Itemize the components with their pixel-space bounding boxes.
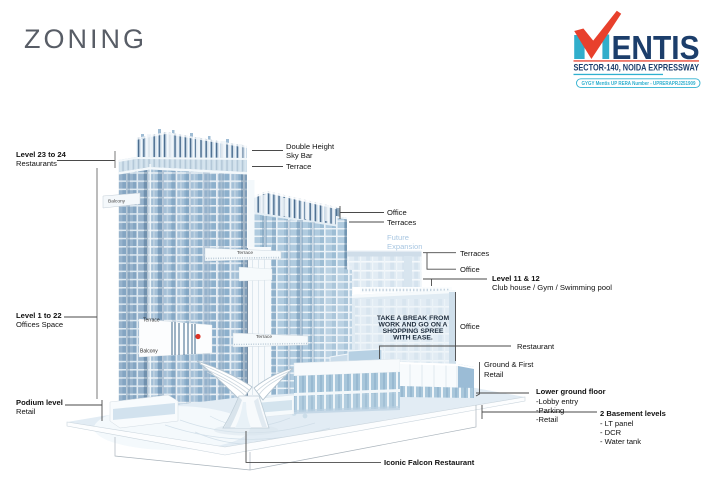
svg-text:-Retail: -Retail xyxy=(536,415,558,424)
svg-text:Sky Bar: Sky Bar xyxy=(286,151,313,160)
svg-text:Double Height: Double Height xyxy=(286,142,335,151)
svg-text:-Lobby entry: -Lobby entry xyxy=(536,397,578,406)
svg-text:Restaurant: Restaurant xyxy=(517,342,555,351)
svg-text:- LT panel: - LT panel xyxy=(600,419,634,428)
svg-text:Ground & First: Ground & First xyxy=(484,360,534,369)
svg-text:Retail: Retail xyxy=(484,370,504,379)
svg-text:Level 11 & 12: Level 11 & 12 xyxy=(492,274,540,283)
svg-text:Terrace: Terrace xyxy=(143,318,160,324)
svg-text:Lower ground floor: Lower ground floor xyxy=(536,387,606,396)
svg-text:Office: Office xyxy=(460,265,480,274)
svg-text:Iconic Falcon Restaurant: Iconic Falcon Restaurant xyxy=(384,458,475,467)
svg-text:Club house / Gym / Swimming po: Club house / Gym / Swimming pool xyxy=(492,283,612,292)
svg-text:Terraces: Terraces xyxy=(387,218,416,227)
svg-text:Terrace: Terrace xyxy=(237,250,253,256)
svg-text:2 Basement levels: 2 Basement levels xyxy=(600,409,666,418)
svg-text:Balcony: Balcony xyxy=(108,199,126,205)
svg-text:Restaurants: Restaurants xyxy=(16,159,57,168)
svg-text:ZONING: ZONING xyxy=(24,24,147,54)
svg-text:SECTOR-140, NOIDA EXPRESSWAY: SECTOR-140, NOIDA EXPRESSWAY xyxy=(574,63,700,73)
svg-text:Level 1 to 22: Level 1 to 22 xyxy=(16,311,62,320)
svg-text:-Parking: -Parking xyxy=(536,406,564,415)
svg-text:Terrace: Terrace xyxy=(256,334,272,340)
svg-text:Future: Future xyxy=(387,233,409,242)
svg-text:GYGY Mentis UP RERA Number - U: GYGY Mentis UP RERA Number - UPRERAPRJ25… xyxy=(582,81,696,87)
svg-text:Office: Office xyxy=(387,208,407,217)
svg-text:Balcony: Balcony xyxy=(140,349,158,355)
svg-text:Expansion: Expansion xyxy=(387,242,422,251)
svg-text:Retail: Retail xyxy=(16,407,36,416)
svg-text:Office: Office xyxy=(460,322,480,331)
svg-text:Offices Space: Offices Space xyxy=(16,320,63,329)
svg-text:Level 23 to 24: Level 23 to 24 xyxy=(16,150,67,159)
svg-text:Terraces: Terraces xyxy=(460,249,489,258)
svg-text:- DCR: - DCR xyxy=(600,428,622,437)
svg-text:Terrace: Terrace xyxy=(286,162,311,171)
svg-text:- Water tank: - Water tank xyxy=(600,437,641,446)
svg-text:WITH EASE.: WITH EASE. xyxy=(393,335,433,342)
svg-text:Podium level: Podium level xyxy=(16,398,63,407)
